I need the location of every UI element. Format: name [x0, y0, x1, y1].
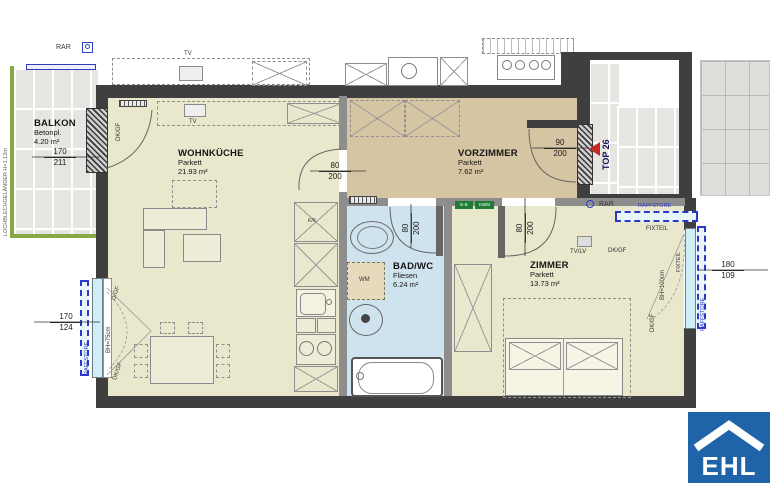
- bathroom-door-leaf: [436, 206, 443, 256]
- balcony-rail-bar: [26, 64, 96, 70]
- kitchen-cabinet: [294, 243, 338, 287]
- ehl-roof-icon: [688, 412, 770, 452]
- raffstore-blind-top: [615, 211, 698, 222]
- sink-icon: [401, 63, 417, 79]
- room-area: 6.24 m²: [393, 281, 433, 290]
- bed-pillow: [509, 342, 561, 370]
- chair: [188, 322, 203, 334]
- room-area: 13.73 m²: [530, 280, 569, 289]
- washing-machine: WM: [347, 262, 385, 300]
- rar-icon: [82, 42, 93, 53]
- dim-height: 124: [50, 323, 82, 333]
- faucet-icon: [356, 372, 364, 380]
- tv-label: TV: [189, 119, 197, 125]
- corridor-tiles: [617, 106, 679, 195]
- wardrobe: [405, 100, 460, 137]
- dim-balcony-door: 170 211: [44, 147, 76, 167]
- dim-left-window: 170 124: [50, 312, 82, 332]
- chair: [160, 322, 175, 334]
- bed-divider: [563, 338, 564, 396]
- ehl-logo: EHL: [688, 412, 770, 483]
- door-type-label: DK/GF: [116, 101, 122, 141]
- neighbour-kitchen-unit: [345, 63, 387, 86]
- dim-bath-door: 80 200: [401, 213, 421, 243]
- kitchen-drawer: [317, 318, 336, 333]
- stairwell-area: [700, 60, 770, 196]
- raffstore-label: RAFFSTORE: [701, 273, 707, 331]
- dim-height: 200: [319, 172, 351, 182]
- wall: [96, 85, 577, 98]
- sofa: [143, 208, 207, 230]
- window-right: [685, 228, 696, 329]
- meter-tag: E-B: [455, 201, 473, 209]
- dim-width: 90: [544, 138, 576, 149]
- burner-icon: [515, 60, 525, 70]
- dim-width: 170: [44, 147, 76, 158]
- drain-icon: [361, 314, 370, 323]
- dim-width: 80: [319, 161, 351, 172]
- bathtub-inner: [358, 362, 434, 394]
- kitchen-cabinet: [294, 366, 338, 392]
- raffstore-label: RAFFSTORE: [638, 204, 671, 210]
- tv-lv-label: TV/LV: [570, 249, 586, 255]
- entrance-door-leaf: [527, 120, 579, 128]
- door-type-label: DK/GF: [608, 248, 626, 254]
- sink-basin: [300, 293, 326, 315]
- chair: [216, 344, 230, 358]
- rar-label: RAR: [599, 201, 614, 208]
- wall-interior: [339, 192, 347, 396]
- room-area: 4.20 m²: [34, 138, 76, 147]
- washing-machine-label: WM: [359, 277, 384, 283]
- dim-room-door: 80 200: [515, 213, 535, 243]
- room-label-wohnkueche: WOHNKÜCHE Parkett 21.93 m²: [178, 148, 244, 177]
- fridge-label: K/K: [308, 219, 316, 224]
- balcony-edge-bottom: [10, 234, 98, 238]
- chair: [216, 364, 230, 378]
- dim-right-window: 180 109: [712, 260, 744, 280]
- wall-interior: [444, 206, 452, 396]
- tv-icon: [184, 104, 206, 117]
- burner-icon: [502, 60, 512, 70]
- bedroom-door-leaf: [498, 206, 505, 258]
- dim-width: 80: [401, 213, 412, 243]
- raffstore-label: RAFFSTORE: [85, 319, 91, 375]
- burner-icon: [299, 341, 314, 356]
- wall: [566, 52, 692, 60]
- room-label-bad: BAD/WC Fliesen 6.24 m²: [393, 261, 433, 290]
- ehl-logo-text: EHL: [688, 453, 770, 479]
- dim-height: 200: [412, 213, 422, 243]
- sill-height-label: BH=100cm: [660, 248, 666, 300]
- rar-icon-dot: [85, 44, 90, 49]
- dining-table: [150, 336, 214, 384]
- burner-icon: [317, 341, 332, 356]
- room-label-zimmer: ZIMMER Parkett 13.73 m²: [530, 260, 569, 289]
- balcony-door: [86, 108, 108, 173]
- rar-icon: [586, 200, 594, 208]
- tv-label: TV: [184, 51, 192, 57]
- wall: [684, 328, 696, 408]
- wall: [577, 60, 590, 124]
- dim-height: 200: [544, 149, 576, 159]
- tv-icon: [179, 66, 203, 81]
- room-label-vorzimmer: VORZIMMER Parkett 7.62 m²: [458, 148, 518, 177]
- furniture-outline: [172, 180, 217, 208]
- meter-tag: KWM: [475, 201, 494, 209]
- radiator: [119, 100, 147, 107]
- room-label-balkon: BALKON Betonpl. 4.20 m²: [34, 118, 76, 147]
- neighbour-cabinet: [252, 61, 307, 86]
- wardrobe: [454, 264, 492, 352]
- dim-width: 170: [50, 312, 82, 323]
- fixteil-label: FIXTEIL: [646, 226, 668, 232]
- room-area: 21.93 m²: [178, 168, 244, 177]
- room-area: 7.62 m²: [458, 168, 518, 177]
- dim-living-door: 80 200: [319, 161, 351, 181]
- radiator: [349, 196, 377, 204]
- wardrobe: [350, 100, 405, 137]
- chair: [134, 364, 148, 378]
- burner-icon: [541, 60, 551, 70]
- floor-plan: TV TV DK/GF K/K WM: [0, 0, 770, 483]
- dim-height: 200: [526, 213, 536, 243]
- kitchen-drawer: [296, 318, 316, 333]
- wall: [96, 170, 108, 286]
- dim-height: 211: [44, 158, 76, 168]
- bed-pillow: [566, 342, 618, 370]
- cabinet: [287, 103, 341, 124]
- tv-icon: [577, 236, 592, 247]
- toilet-bowl: [357, 226, 388, 249]
- wall: [561, 52, 577, 94]
- chair: [134, 344, 148, 358]
- rar-label: RAR: [56, 44, 71, 51]
- dim-width: 80: [515, 213, 526, 243]
- burner-icon: [529, 60, 539, 70]
- fixteil-label: FIXTEIL: [677, 228, 683, 272]
- unit-number-label: TOP 26: [601, 114, 611, 170]
- wall: [679, 56, 692, 202]
- sofa: [143, 230, 165, 268]
- neighbour-cabinet: [440, 57, 468, 86]
- faucet-icon: [326, 299, 332, 305]
- wall: [96, 85, 108, 110]
- entrance-marker-icon: [589, 142, 600, 156]
- sill-height-label: BH=75cm: [106, 307, 112, 353]
- dim-width: 180: [712, 260, 744, 271]
- coffee-table: [183, 234, 221, 262]
- window-left: [92, 278, 103, 378]
- dim-entrance-door: 90 200: [544, 138, 576, 158]
- door-type-label: DK/GF: [650, 292, 656, 332]
- dim-height: 109: [712, 271, 744, 281]
- balcony-railing-label: LOCHBLECHGELÄNDER H=1.12m: [4, 66, 10, 236]
